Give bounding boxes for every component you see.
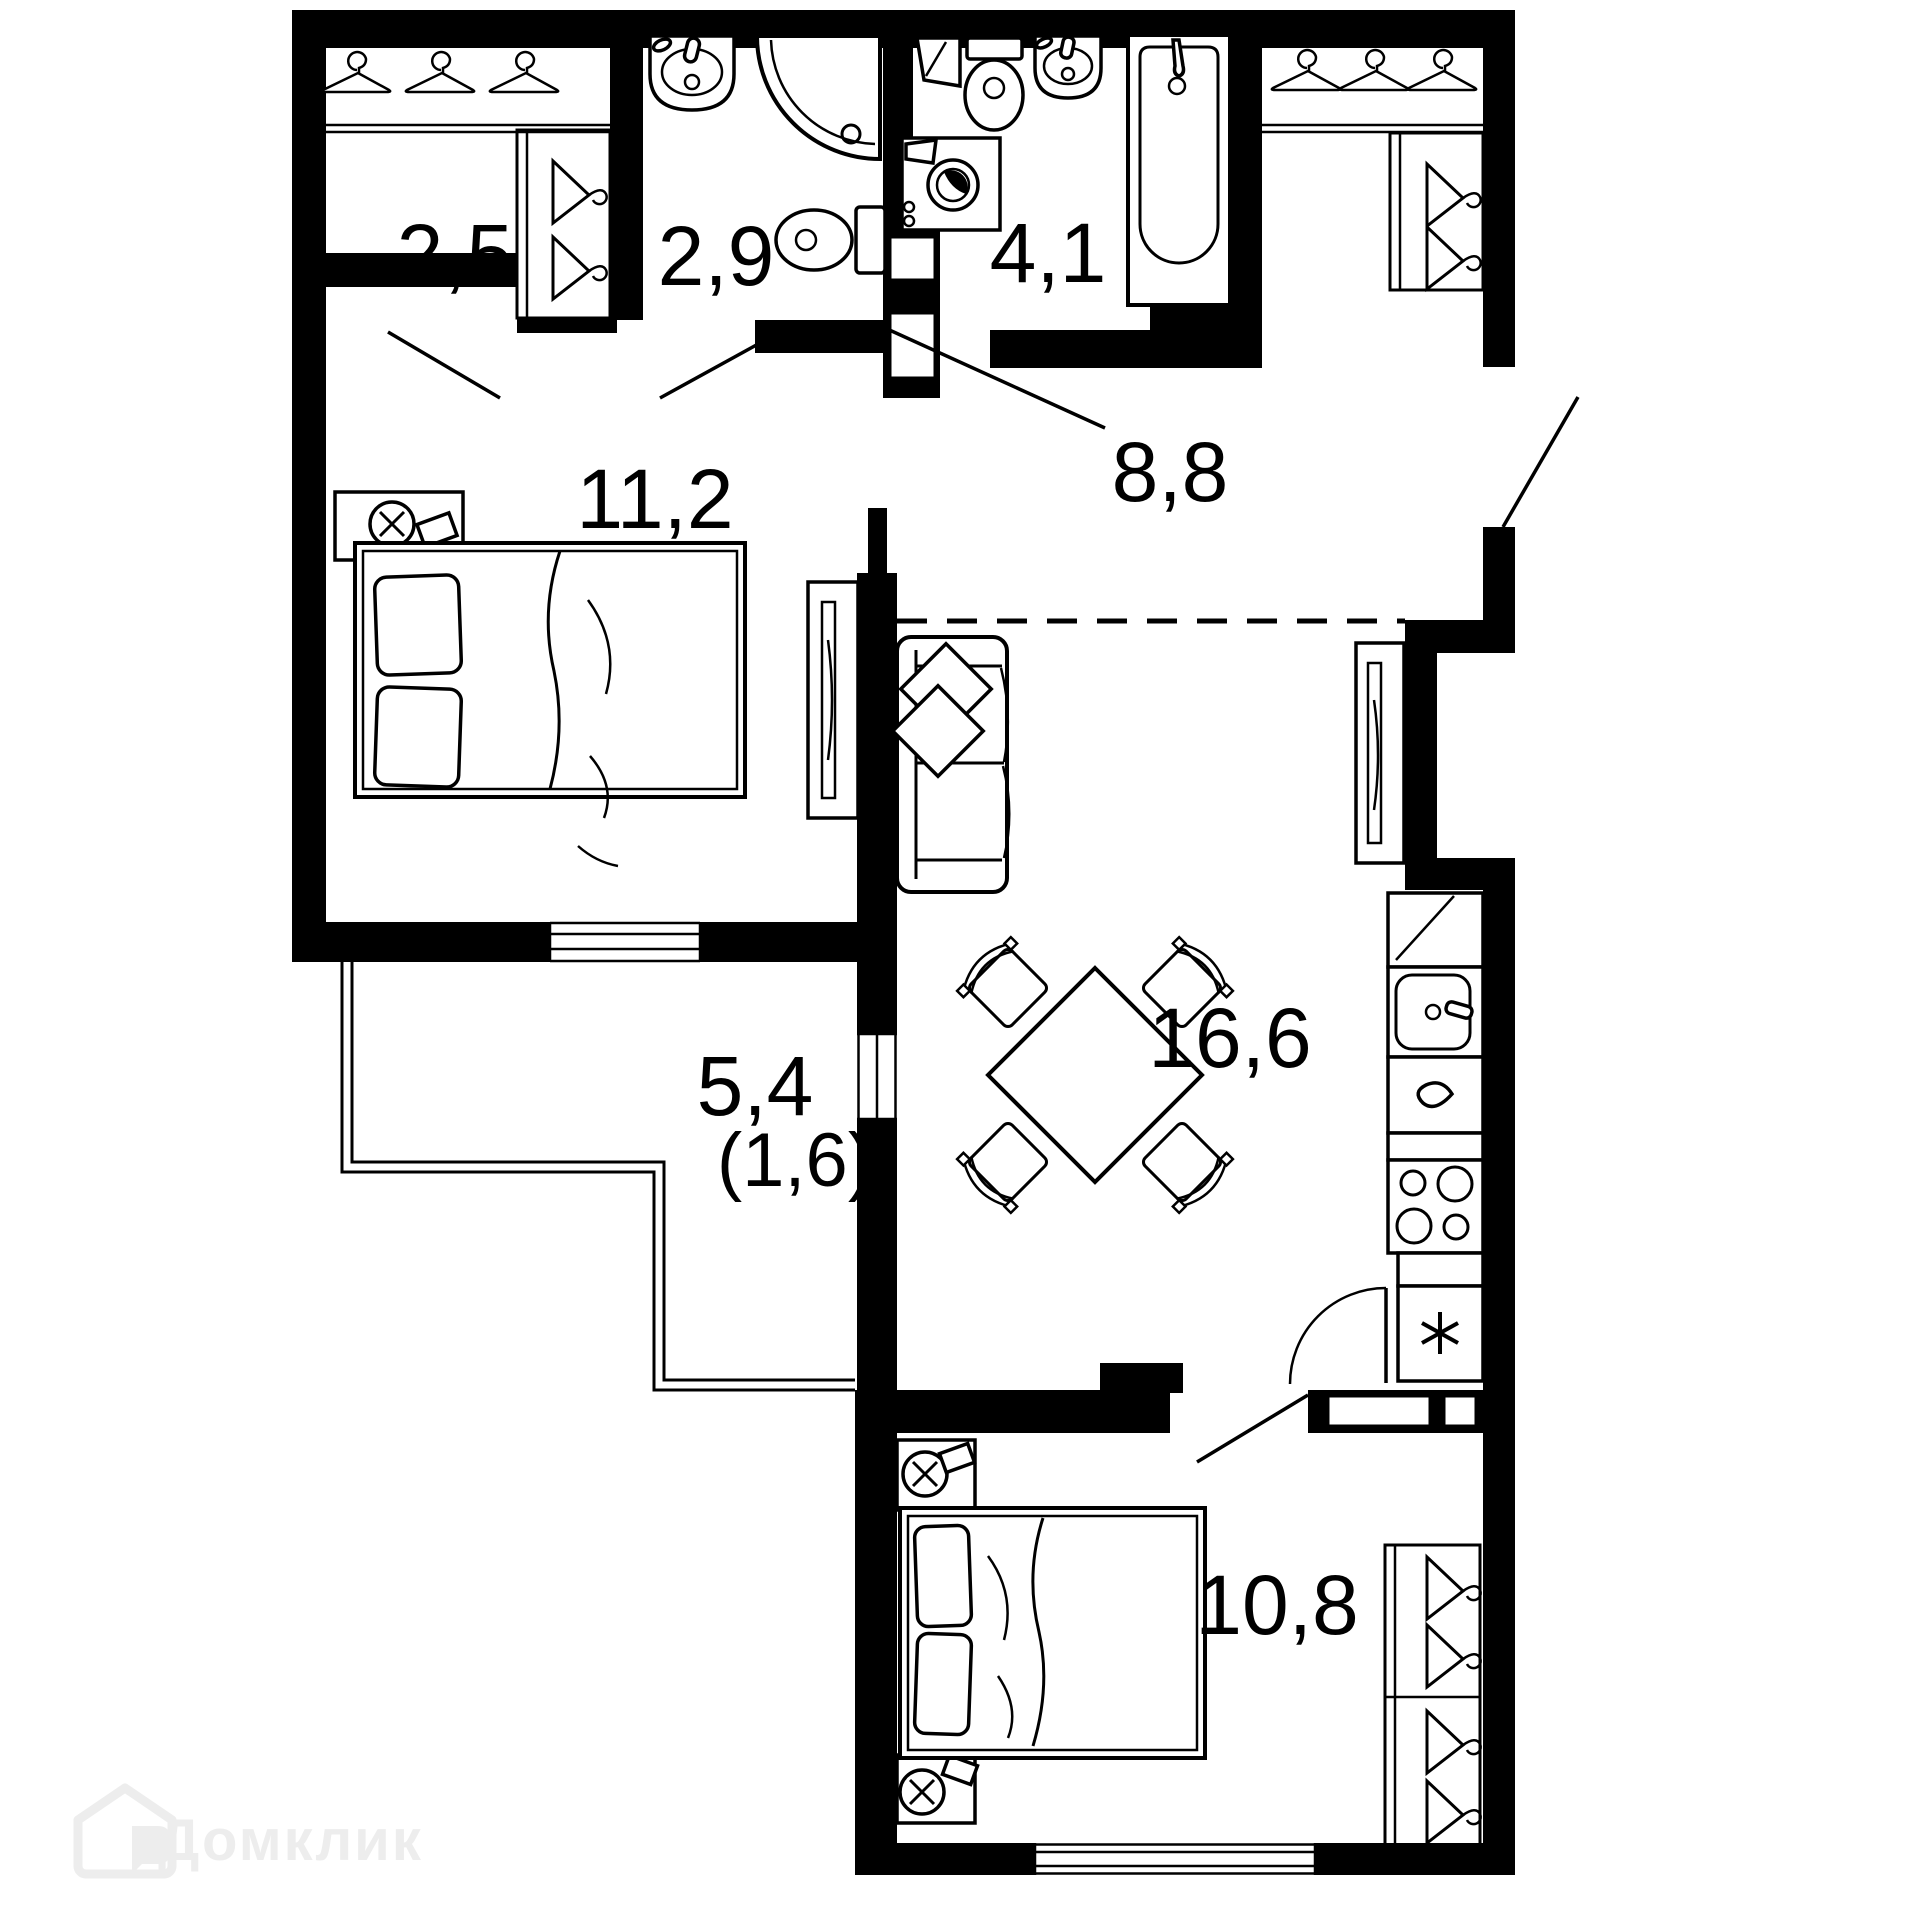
bed-icon bbox=[900, 1508, 1205, 1758]
front-hanger-icon bbox=[1408, 50, 1476, 90]
kitchen-counter bbox=[1388, 893, 1483, 1381]
sofa-icon bbox=[893, 637, 1010, 892]
wall-room2-left bbox=[855, 1390, 897, 1875]
room-label-wardrobe: 2,5 bbox=[397, 207, 514, 301]
wall-top bbox=[292, 10, 1515, 48]
room-label-bathroom-large: 4,1 bbox=[990, 206, 1107, 300]
wall-bottom-left bbox=[855, 1843, 1035, 1875]
duct-box-4 bbox=[1444, 1396, 1476, 1426]
entry-door-leaf bbox=[1503, 397, 1578, 527]
wall-right-lower bbox=[1483, 890, 1515, 1875]
kitchen-counter-strip bbox=[1398, 1253, 1483, 1286]
door-wardrobe-leaf bbox=[388, 332, 500, 398]
bed-icon bbox=[355, 543, 745, 866]
side-hanger-icon bbox=[1427, 1711, 1481, 1773]
bedroom2-window bbox=[1035, 1843, 1315, 1875]
room-label-bedroom: 11,2 bbox=[576, 452, 733, 546]
sink-icon bbox=[650, 36, 734, 110]
balcony-door-window bbox=[857, 1033, 897, 1120]
front-hanger-icon bbox=[1340, 50, 1408, 90]
wall-bedroom-living bbox=[857, 573, 897, 962]
chair-icon bbox=[953, 1115, 1056, 1218]
room-label-bedroom-second: 10,8 bbox=[1195, 1558, 1359, 1652]
room-label-bathroom-small: 2,9 bbox=[658, 209, 775, 303]
kitchen-sink-icon bbox=[1388, 967, 1483, 1057]
tv-stand-icon bbox=[1356, 643, 1404, 863]
stove-icon bbox=[1388, 1160, 1483, 1253]
wall-room2-top-left bbox=[897, 1390, 1170, 1433]
room-hallway bbox=[1262, 50, 1483, 290]
kitchen-door bbox=[1290, 1288, 1386, 1384]
chair-icon bbox=[953, 933, 1056, 1036]
nightstand-lamp-icon bbox=[897, 1440, 975, 1510]
wall-balcony-upper bbox=[857, 962, 897, 1033]
front-hanger-icon bbox=[1272, 50, 1340, 90]
wall-inner-right bbox=[1405, 620, 1437, 890]
door-bedroom2-leaf bbox=[1197, 1395, 1308, 1462]
wall-div-wardrobe-bath bbox=[610, 48, 643, 320]
wall-right-top bbox=[1483, 10, 1515, 367]
wall-jut-bottom bbox=[1437, 858, 1515, 890]
room-label-balcony-reduced: (1,6) bbox=[717, 1118, 873, 1203]
wall-stub-bedroom bbox=[868, 508, 887, 573]
washing-machine-icon bbox=[902, 138, 1000, 230]
chair-icon bbox=[1135, 1115, 1238, 1218]
door-bath-small-leaf bbox=[660, 343, 760, 398]
bedroom-window bbox=[550, 922, 700, 962]
sink-icon bbox=[1035, 36, 1101, 98]
side-hanger-icon bbox=[1427, 1625, 1481, 1687]
duct-box-2 bbox=[890, 313, 935, 378]
side-hanger-icon bbox=[1427, 164, 1481, 226]
wall-closet-bottom bbox=[517, 318, 617, 333]
room-label-hallway: 8,8 bbox=[1112, 425, 1229, 519]
room-bedroom-second bbox=[897, 1440, 1481, 1850]
wall-bath-large-bottom bbox=[990, 330, 1262, 368]
toilet-icon bbox=[965, 38, 1023, 130]
wall-left bbox=[292, 48, 326, 962]
duct-box-1 bbox=[890, 237, 935, 280]
kitchen-cabinet bbox=[1388, 1057, 1483, 1133]
shower-icon bbox=[757, 36, 880, 159]
side-hanger-icon bbox=[553, 237, 607, 299]
room-label-living-kitchen: 16,6 bbox=[1148, 991, 1312, 1085]
side-hanger-icon bbox=[553, 161, 607, 223]
toilet-icon bbox=[776, 207, 885, 273]
side-hanger-icon bbox=[1427, 1781, 1481, 1843]
kitchen-corner-cabinet bbox=[1388, 893, 1483, 967]
corner-shelf-icon bbox=[917, 38, 960, 86]
wall-bedroom-bottom-left bbox=[326, 922, 550, 962]
fridge-icon bbox=[1398, 1286, 1483, 1381]
wall-div-bath-hall bbox=[1230, 48, 1262, 368]
front-hanger-icon bbox=[322, 52, 390, 92]
wall-bath-small-bottom bbox=[755, 320, 883, 353]
watermark: Домклик bbox=[78, 1788, 423, 1874]
side-hanger-icon bbox=[1427, 1557, 1481, 1619]
front-hanger-icon bbox=[406, 52, 474, 92]
room-bedroom bbox=[335, 492, 858, 866]
tv-stand-icon bbox=[808, 582, 858, 818]
bathtub-icon bbox=[1128, 35, 1230, 305]
wall-room2-step bbox=[1100, 1363, 1183, 1393]
nightstand-lamp-icon bbox=[897, 1755, 978, 1823]
kitchen-counter-strip bbox=[1388, 1133, 1483, 1160]
side-hanger-icon bbox=[1427, 227, 1481, 289]
watermark-text: Домклик bbox=[158, 1808, 423, 1873]
duct-box-3 bbox=[1328, 1396, 1430, 1426]
wall-bottom-right bbox=[1315, 1843, 1515, 1875]
floor-plan: 2,5 2,9 4,1 8,8 11,2 16,6 5,4 (1,6) 10,8… bbox=[0, 0, 1920, 1920]
wardrobe-icon bbox=[1385, 1545, 1481, 1850]
front-hanger-icon bbox=[490, 52, 558, 92]
